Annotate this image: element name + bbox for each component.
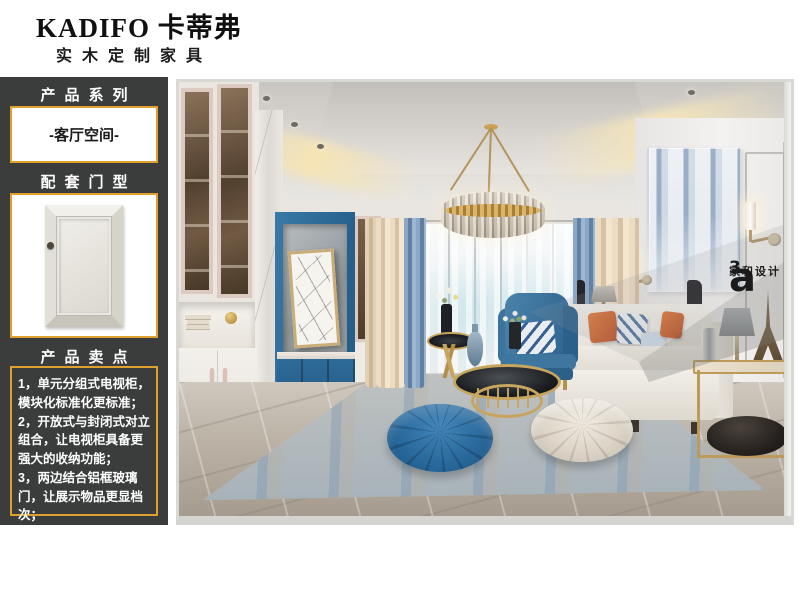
living-room-photo: a3 家和设计 — [176, 79, 794, 525]
section-label-door-type: 配套门型 — [0, 171, 168, 192]
chandelier-gold-band — [445, 204, 541, 217]
round-storage-box — [707, 416, 787, 456]
series-value-box: -客厅空间- — [10, 106, 158, 163]
white-ottoman — [531, 398, 633, 462]
door-knob — [47, 242, 54, 249]
brand-subtitle: 实木定制家具 — [56, 42, 212, 66]
wall-sconce-right — [745, 202, 756, 230]
door-panel-image — [45, 205, 123, 327]
recessed-spotlight — [291, 122, 298, 127]
section-label-product-series: 产品系列 — [0, 84, 168, 105]
recessed-spotlight — [688, 90, 695, 95]
door-panel-box — [10, 193, 158, 338]
blue-ottoman — [387, 404, 493, 472]
gold-ornament — [225, 312, 237, 324]
recessed-spotlight — [317, 144, 324, 149]
watermark-studio-name: 家和设计 — [729, 263, 781, 279]
books — [187, 320, 209, 324]
leaning-artwork — [288, 249, 341, 349]
flowers — [431, 284, 461, 306]
books — [185, 315, 211, 319]
door-panel-inner — [59, 219, 109, 313]
glass-door — [217, 84, 252, 298]
brand-title: KADIFO 卡蒂弗 — [36, 6, 242, 45]
cream-drape-left — [376, 218, 406, 388]
section-label-selling-points: 产品卖点 — [0, 346, 168, 367]
artwork-scribbles — [294, 255, 334, 342]
armchair-leg — [563, 380, 567, 390]
selling-point-1: 1，单元分组式电视柜，模块化标准化更标准； — [18, 375, 150, 413]
recessed-spotlight — [263, 96, 270, 101]
coffee-table-bars — [477, 388, 533, 408]
glass-decanter — [467, 332, 483, 366]
selling-points-box: 1，单元分组式电视柜，模块化标准化更标准； 2，开放式与封闭式对立组合，让电视柜… — [10, 366, 158, 516]
photo-right-edge — [784, 82, 791, 516]
selling-point-3: 3，两边结合铝框玻璃门，让展示物品更显档次； — [18, 469, 150, 525]
glass-door — [181, 88, 213, 294]
flower-vase — [509, 322, 521, 349]
sidebar: 产品系列 -客厅空间- 配套门型 产品卖点 1，单元分组式电视柜，模块化标准化更… — [0, 77, 168, 525]
series-value: -客厅空间- — [49, 124, 119, 145]
books — [186, 325, 210, 329]
selling-point-2: 2，开放式与封闭式对立组合，让电视柜具备更强大的收纳功能； — [18, 413, 150, 469]
blue-drape-left — [404, 218, 426, 388]
tv-bench-top — [277, 352, 355, 359]
